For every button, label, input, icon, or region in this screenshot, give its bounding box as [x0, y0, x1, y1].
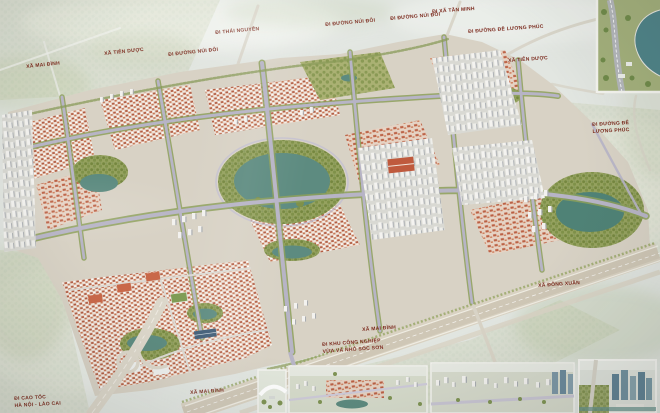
inset-strip: [258, 360, 656, 413]
inset-panorama-4: [579, 360, 656, 413]
inset-panorama-1: [258, 370, 286, 413]
inset-panorama-3: [431, 363, 574, 413]
inset-panorama-2: [289, 366, 427, 413]
west-lake: [80, 174, 118, 192]
map-label-di-duong-de-luong-phuc-2: ĐI ĐƯỜNG ĐÊ LƯƠNG PHÚC: [592, 120, 630, 135]
inset-detail-top-right: [597, 0, 660, 93]
masterplan-board-photo: XÃ MAI ĐÌNH XÃ TIÊN DƯỢC ĐI ĐƯỜNG NÚI ĐÔ…: [0, 0, 660, 413]
map-label-di-cao-toc: ĐI CAO TỐC HÀ NỘI - LÀO CAI: [14, 394, 61, 409]
